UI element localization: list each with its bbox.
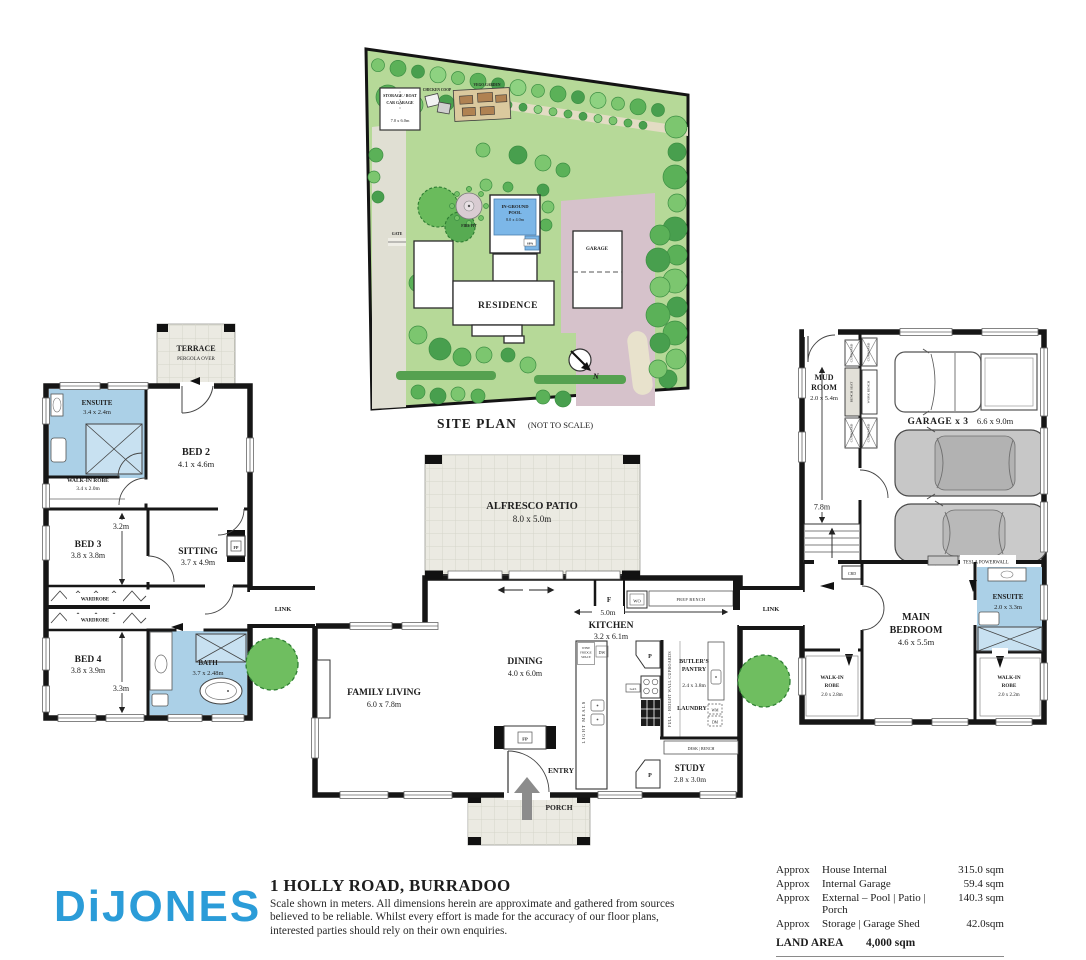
dim-garage: 7.8m <box>814 503 831 512</box>
dining-label: DINING <box>507 657 543 667</box>
wir2-dim: 3.4 x 2.0m <box>76 486 100 492</box>
pool-label-1: IN-GROUND <box>501 204 529 209</box>
kitchen-island: WINE FRIDGE SPACE DW LIGHT MEALS <box>576 641 608 789</box>
family-living-label: FAMILY LIVING <box>347 688 421 698</box>
kitchen-label: KITCHEN <box>589 621 634 631</box>
wine-fridge-label-3: SPACE <box>581 655 591 659</box>
study-label: STUDY <box>675 763 706 773</box>
area-row: Approx External – Pool | Patio | Porch 1… <box>776 892 1004 916</box>
ensuite-main-label: ENSUITE <box>993 593 1024 601</box>
site-garage: GARAGE <box>573 231 622 308</box>
dm-label: DM <box>712 721 719 725</box>
spa-label: SPA <box>527 242 534 246</box>
area-label: Storage | Garage Shed <box>822 918 942 930</box>
wine-fridge-label-1: WINE <box>582 646 590 650</box>
site-left-path <box>372 123 406 409</box>
car-ute <box>895 349 1037 415</box>
area-row: Approx Storage | Garage Shed 42.0sqm <box>776 918 1004 930</box>
bed3-label: BED 3 <box>75 540 102 550</box>
area-approx: Approx <box>776 878 822 890</box>
mud-room-label-2: ROOM <box>811 383 837 392</box>
svg-text:CAR GARAGE: CAR GARAGE <box>386 100 414 105</box>
pool-dim: 8.0 x 4.0m <box>506 217 525 222</box>
disclaimer-line: Scale shown in meters. All dimensions he… <box>270 898 750 911</box>
dim-bed3: 3.2m <box>113 522 130 531</box>
floorplan-page: STORAGE / BOAT CAR GARAGE 7.0 x 6.0m CHI… <box>0 0 1086 960</box>
disclaimer-line: interested parties should rely on their … <box>270 925 750 938</box>
bath-dim: 3.7 x 2.48m <box>192 670 223 677</box>
area-approx: Approx <box>776 918 822 930</box>
sitting-label: SITTING <box>178 547 218 557</box>
terrace-sublabel: PERGOLA OVER <box>177 357 215 362</box>
main-bedroom-label-1: MAIN <box>902 612 931 623</box>
property-address: 1 HOLLY ROAD, BURRADOO <box>270 876 511 896</box>
butlers-pantry-label-2: PANTRY <box>682 667 707 673</box>
main-bedroom-label-2: BEDROOM <box>890 625 943 636</box>
bed3-dim: 3.8 x 3.8m <box>71 551 106 560</box>
garage-dim: 6.6 x 9.0m <box>977 416 1014 426</box>
light-meals-label: LIGHT MEALS <box>581 701 586 744</box>
storage-label-2: CAR GARAGE <box>386 100 414 105</box>
dining-dim: 4.0 x 6.0m <box>508 669 543 678</box>
site-storage-garage: STORAGE / BOAT CAR GARAGE 7.0 x 6.0m <box>380 88 420 130</box>
garage-label: GARAGE x 3 <box>908 417 969 427</box>
bed2-dim: 4.1 x 4.6m <box>178 459 215 469</box>
pool-label-2: POOL <box>508 210 521 215</box>
fire-pit-label: FIRE PIT <box>461 224 477 228</box>
full-height-cupboards-label: FULL - HEIGHT WALL CUPBOARDS <box>667 651 672 727</box>
family-living-dim: 6.0 x 7.8m <box>367 700 402 709</box>
wir2-label: WALK-IN ROBE <box>67 478 109 484</box>
bed2-label: BED 2 <box>182 447 210 458</box>
land-area-value: 4,000 sqm <box>866 937 915 949</box>
bath-label: BATH <box>198 659 218 667</box>
veggie-garden-label: VEGO GARDEN <box>473 83 500 87</box>
area-label: House Internal <box>822 864 942 876</box>
wm-label: WM <box>712 709 720 713</box>
area-row: Approx Internal Garage 59.4 sqm <box>776 878 1004 890</box>
area-value: 59.4 sqm <box>942 878 1004 890</box>
site-garage-label: GARAGE <box>586 247 609 252</box>
cbd-label: CBD <box>848 571 856 576</box>
cupboard-label: CUPBOARD <box>850 423 854 442</box>
land-area-row: LAND AREA 4,000 sqm <box>776 937 1004 957</box>
wir-main-left-dim: 2.0 x 2.8m <box>821 693 843 698</box>
desk-bench-label: DESK | BENCH <box>688 746 715 751</box>
prep-bench-label: PREP BENCH <box>676 597 705 602</box>
wardrobe-label-2: WARDROBE <box>81 619 109 624</box>
terrace-area: TERRACE PERGOLA OVER <box>157 324 235 386</box>
wir-main-right-label-2: ROBE <box>1002 683 1017 689</box>
dishwasher-label: DW <box>599 650 606 655</box>
site-hedge <box>396 371 496 380</box>
dim-bed4: 3.3m <box>113 684 130 693</box>
tesla-powerwall-label: TESLA POWERWALL <box>963 561 1009 566</box>
wine-fridge-label-2: FRIDGE <box>580 651 592 655</box>
link-left-label: LINK <box>275 606 292 613</box>
area-row: Approx House Internal 315.0 sqm <box>776 864 1004 876</box>
area-value: 42.0sqm <box>942 918 1004 930</box>
ensuite2-dim: 3.4 x 2.4m <box>83 409 111 416</box>
svg-text:STORAGE / BOAT: STORAGE / BOAT <box>383 93 417 98</box>
area-approx: Approx <box>776 892 822 916</box>
brand-logo: DiJONES <box>54 882 261 932</box>
dining-fp-label: FP <box>522 737 528 742</box>
alfresco-patio-area: ALFRESCO PATIO 8.0 x 5.0m <box>425 455 640 575</box>
site-veggie-garden <box>453 88 511 122</box>
terrace-label: TERRACE <box>176 344 215 353</box>
butlers-pantry-dim: 2.4 x 3.8m <box>682 683 706 689</box>
sitting-fireplace: FP <box>227 530 245 562</box>
gate-label: GATE <box>392 232 403 236</box>
sitting-dim: 3.7 x 4.9m <box>181 558 216 567</box>
site-hedge <box>534 375 626 384</box>
courtyard-tree-right <box>738 655 790 707</box>
wir-main-left-label-1: WALK-IN <box>820 675 844 681</box>
study-dim: 2.8 x 3.0m <box>674 775 706 784</box>
sitting-fp-label: FP <box>234 545 239 550</box>
area-label: Internal Garage <box>822 878 942 890</box>
plan-svg: STORAGE / BOAT CAR GARAGE 7.0 x 6.0m CHI… <box>0 0 1086 960</box>
gas-label: GAS <box>630 687 637 691</box>
area-approx: Approx <box>776 864 822 876</box>
courtyard-tree-left <box>246 638 298 690</box>
alfresco-dim: 8.0 x 5.0m <box>513 514 552 524</box>
ensuite-main-dim: 2.0 x 3.3m <box>994 604 1022 611</box>
site-pool: IN-GROUND POOL 8.0 x 4.0m SPA <box>490 195 540 253</box>
cupboard-label: CUPBOARD <box>867 342 871 361</box>
residence-label: RESIDENCE <box>478 301 538 311</box>
cupboard-label: CUPBOARD <box>850 343 854 362</box>
porch-label: PORCH <box>545 803 572 812</box>
wir-main-right-dim: 2.0 x 2.2m <box>998 693 1020 698</box>
pantry-p-label-1: P <box>648 654 652 660</box>
laundry-label: LAUNDRY <box>677 706 707 712</box>
stairs <box>804 524 860 562</box>
site-plan-caption: SITE PLAN (NOT TO SCALE) <box>437 415 593 432</box>
link-right-label: LINK <box>763 606 780 613</box>
wir-main-right-label-1: WALK-IN <box>997 675 1021 681</box>
site-plan: STORAGE / BOAT CAR GARAGE 7.0 x 6.0m CHI… <box>366 49 688 432</box>
land-area-label: LAND AREA <box>776 937 856 949</box>
bed4-dim: 3.8 x 3.9m <box>71 666 106 675</box>
fridge-label: F <box>607 596 611 604</box>
entry-label: ENTRY <box>548 766 575 775</box>
wall-oven-label: WO <box>633 599 641 604</box>
cupboard-label: CUPBOARD <box>867 423 871 442</box>
ensuite2-label: ENSUITE <box>82 399 113 407</box>
disclaimer: Scale shown in meters. All dimensions he… <box>270 898 750 938</box>
work-bench-label: WORK BENCH <box>867 380 871 403</box>
wir-main-left-label-2: ROBE <box>825 683 840 689</box>
kitchen-dim: 3.2 x 6.1m <box>594 632 629 641</box>
chicken-coop-label: CHICKEN COOP <box>423 88 452 92</box>
bench-seat-label: BENCH SEAT <box>850 381 854 402</box>
tv-unit <box>317 660 330 718</box>
wardrobe-label-1: WARDROBE <box>81 598 109 603</box>
area-value: 140.3 sqm <box>942 892 1004 916</box>
area-summary: Approx House Internal 315.0 sqm Approx I… <box>776 864 1004 957</box>
pantry-p-label-2: P <box>648 773 652 779</box>
mud-room-label-1: MUD <box>814 373 833 382</box>
car-suv <box>895 427 1045 499</box>
dim-kitchen: 5.0m <box>600 608 615 617</box>
storage-dim: 7.0 x 6.0m <box>391 118 410 123</box>
butlers-pantry-label-1: BUTLER'S <box>679 659 709 665</box>
mud-room-dim: 2.0 x 5.4m <box>810 395 838 402</box>
dining-fireplace: FP <box>494 726 556 749</box>
footer: DiJONES 1 HOLLY ROAD, BURRADOO Scale sho… <box>0 858 1086 958</box>
bed4-label: BED 4 <box>75 655 102 665</box>
main-bedroom-dim: 4.6 x 5.5m <box>898 637 935 647</box>
storage-label-1: STORAGE / BOAT <box>383 93 417 98</box>
alfresco-label: ALFRESCO PATIO <box>486 501 578 512</box>
disclaimer-line: believed to be reliable. Whilst every ef… <box>270 911 750 924</box>
area-label: External – Pool | Patio | Porch <box>822 892 942 916</box>
area-value: 315.0 sqm <box>942 864 1004 876</box>
